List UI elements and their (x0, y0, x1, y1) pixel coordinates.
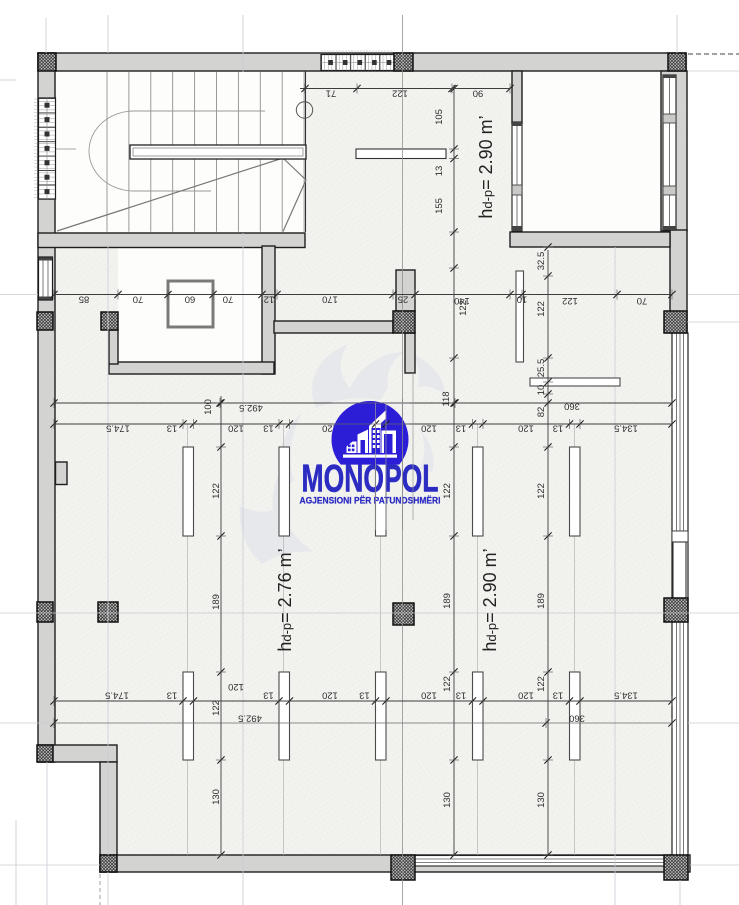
svg-text:90: 90 (473, 88, 484, 99)
svg-text:189: 189 (536, 593, 547, 609)
svg-text:82: 82 (536, 407, 547, 418)
svg-text:32.5: 32.5 (536, 252, 547, 271)
svg-text:100: 100 (203, 399, 214, 415)
svg-text:25.5: 25.5 (536, 359, 547, 378)
svg-text:130: 130 (442, 792, 453, 808)
svg-text:155: 155 (434, 198, 445, 214)
svg-text:492.5: 492.5 (238, 713, 262, 724)
svg-text:122: 122 (536, 483, 547, 499)
svg-text:170: 170 (322, 294, 338, 305)
svg-text:174.5: 174.5 (106, 423, 130, 434)
svg-text:13: 13 (263, 423, 274, 434)
svg-text:122: 122 (536, 676, 547, 692)
svg-text:AGJENSIONI PËR PATUNDSHMËRI: AGJENSIONI PËR PATUNDSHMËRI (300, 496, 441, 506)
svg-text:13: 13 (434, 166, 445, 177)
svg-text:120: 120 (518, 423, 534, 434)
svg-text:10: 10 (517, 294, 528, 305)
svg-text:70: 70 (223, 294, 234, 305)
svg-text:122: 122 (442, 676, 453, 692)
svg-text:122: 122 (536, 301, 547, 317)
svg-text:13: 13 (167, 423, 178, 434)
svg-text:122: 122 (392, 88, 408, 99)
svg-text:13: 13 (263, 690, 274, 701)
svg-text:189: 189 (211, 594, 222, 610)
svg-text:12: 12 (264, 294, 275, 305)
svg-text:120: 120 (228, 681, 244, 692)
svg-text:70: 70 (637, 295, 648, 306)
svg-text:492.5: 492.5 (239, 402, 263, 413)
svg-text:60: 60 (185, 294, 196, 305)
svg-text:122: 122 (458, 300, 469, 316)
svg-text:174.5: 174.5 (105, 690, 129, 701)
svg-text:13: 13 (167, 690, 178, 701)
svg-text:134.5: 134.5 (614, 423, 638, 434)
svg-text:122: 122 (562, 295, 578, 306)
svg-text:122: 122 (211, 700, 222, 716)
svg-text:13: 13 (553, 423, 564, 434)
svg-text:118: 118 (441, 391, 452, 406)
svg-text:134.5: 134.5 (614, 690, 638, 701)
svg-text:130: 130 (536, 792, 547, 808)
svg-text:120: 120 (322, 690, 338, 701)
svg-text:13: 13 (359, 690, 370, 701)
svg-text:122: 122 (442, 483, 453, 499)
svg-text:10: 10 (536, 385, 547, 396)
svg-text:120: 120 (228, 423, 244, 434)
svg-text:85: 85 (79, 294, 90, 305)
svg-text:MONOPOL: MONOPOL (302, 458, 439, 501)
svg-text:71: 71 (326, 88, 337, 99)
svg-text:70: 70 (133, 294, 144, 305)
svg-text:25: 25 (398, 294, 409, 305)
svg-text:120: 120 (421, 690, 437, 701)
svg-text:120: 120 (518, 690, 534, 701)
svg-text:13: 13 (553, 690, 564, 701)
svg-text:360: 360 (564, 401, 580, 412)
svg-text:360: 360 (569, 713, 585, 724)
svg-text:130: 130 (211, 789, 222, 805)
svg-text:122: 122 (211, 483, 222, 499)
svg-text:13: 13 (456, 423, 467, 434)
svg-text:105: 105 (434, 109, 445, 125)
svg-text:13: 13 (456, 690, 467, 701)
svg-text:120: 120 (421, 423, 437, 434)
svg-text:189: 189 (442, 593, 453, 609)
